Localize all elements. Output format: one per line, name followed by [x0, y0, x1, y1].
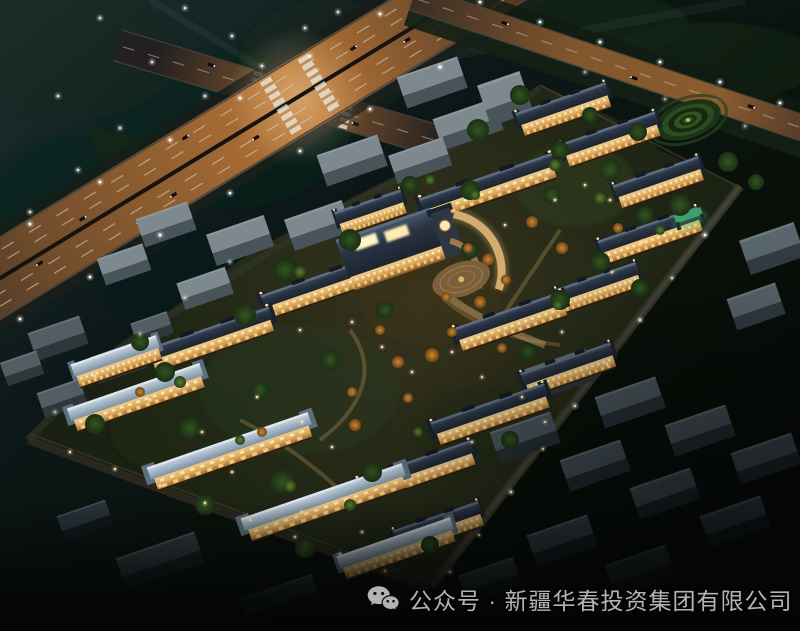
scene-svg: [0, 0, 800, 631]
caption-text: 公众号 · 新疆华春投资集团有限公司: [409, 582, 792, 616]
wechat-icon: [366, 584, 400, 614]
watermark-caption: 公众号 · 新疆华春投资集团有限公司: [366, 581, 792, 617]
aerial-night-rendering: 公众号 · 新疆华春投资集团有限公司: [0, 0, 800, 631]
